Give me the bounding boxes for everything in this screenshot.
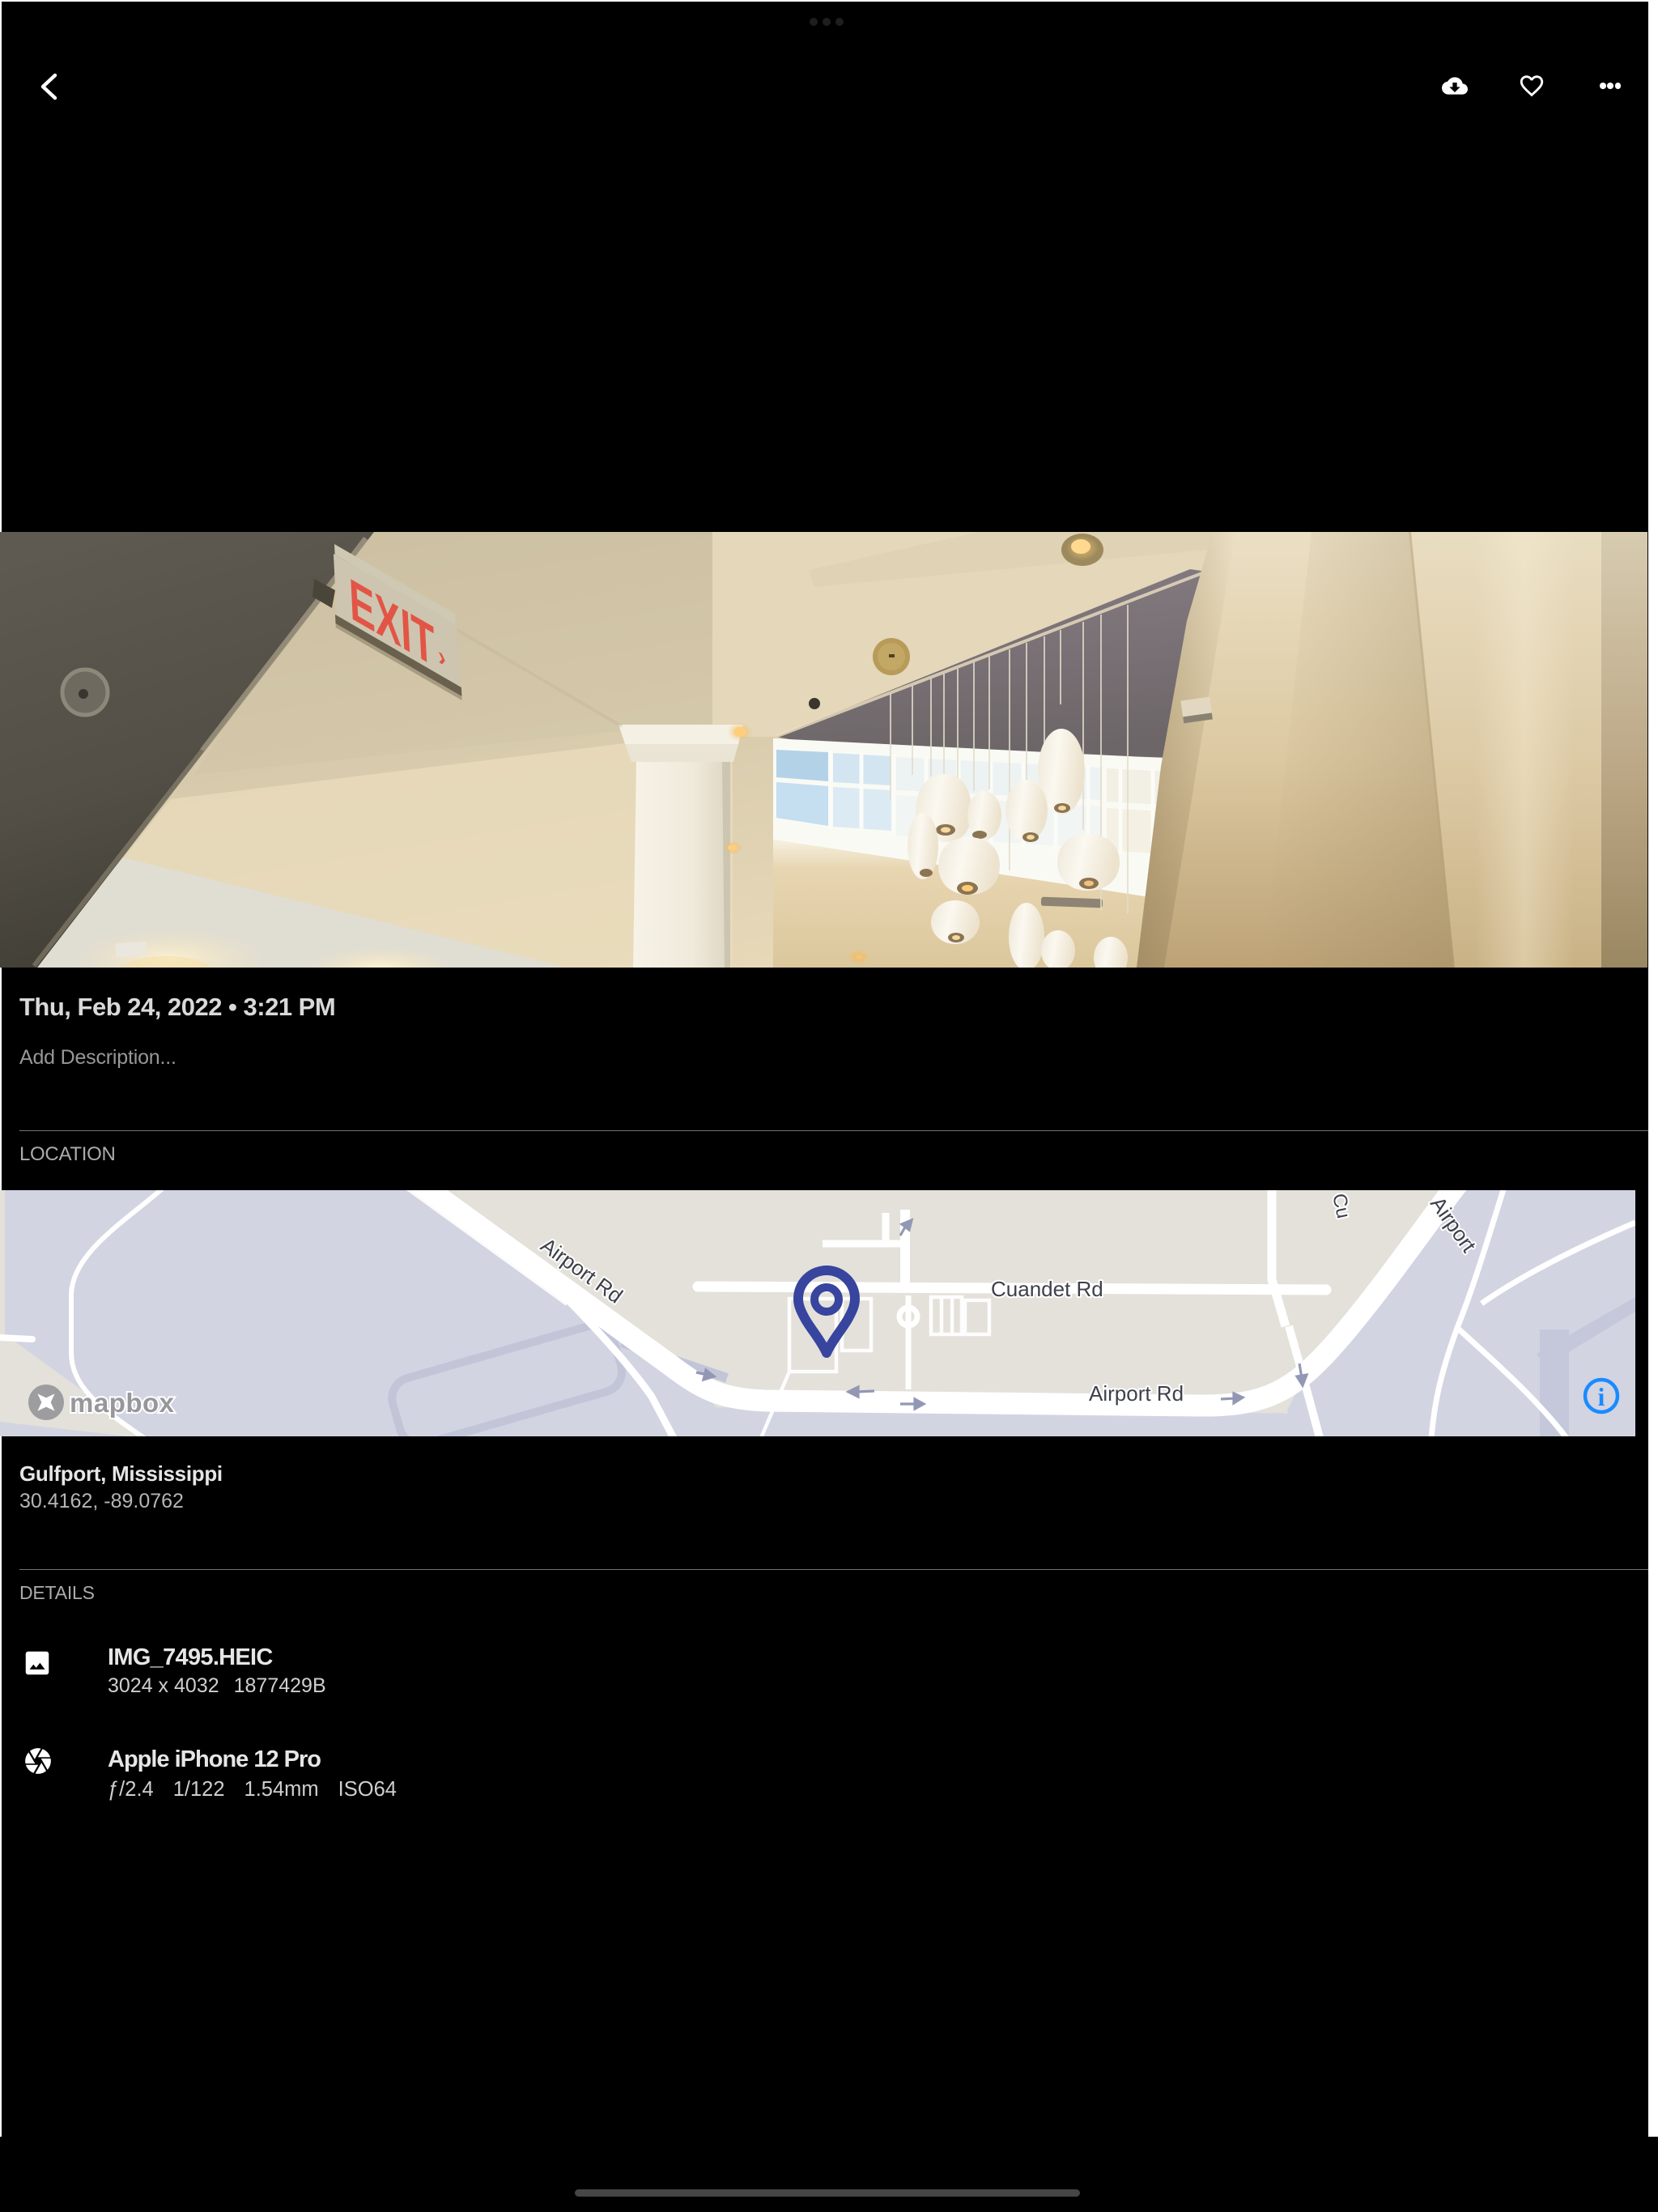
svg-text:Cuandet Rd: Cuandet Rd xyxy=(991,1277,1103,1301)
svg-text:i: i xyxy=(1598,1382,1605,1411)
svg-text:mapbox: mapbox xyxy=(70,1388,175,1418)
svg-text:Airport Rd: Airport Rd xyxy=(1089,1381,1184,1406)
